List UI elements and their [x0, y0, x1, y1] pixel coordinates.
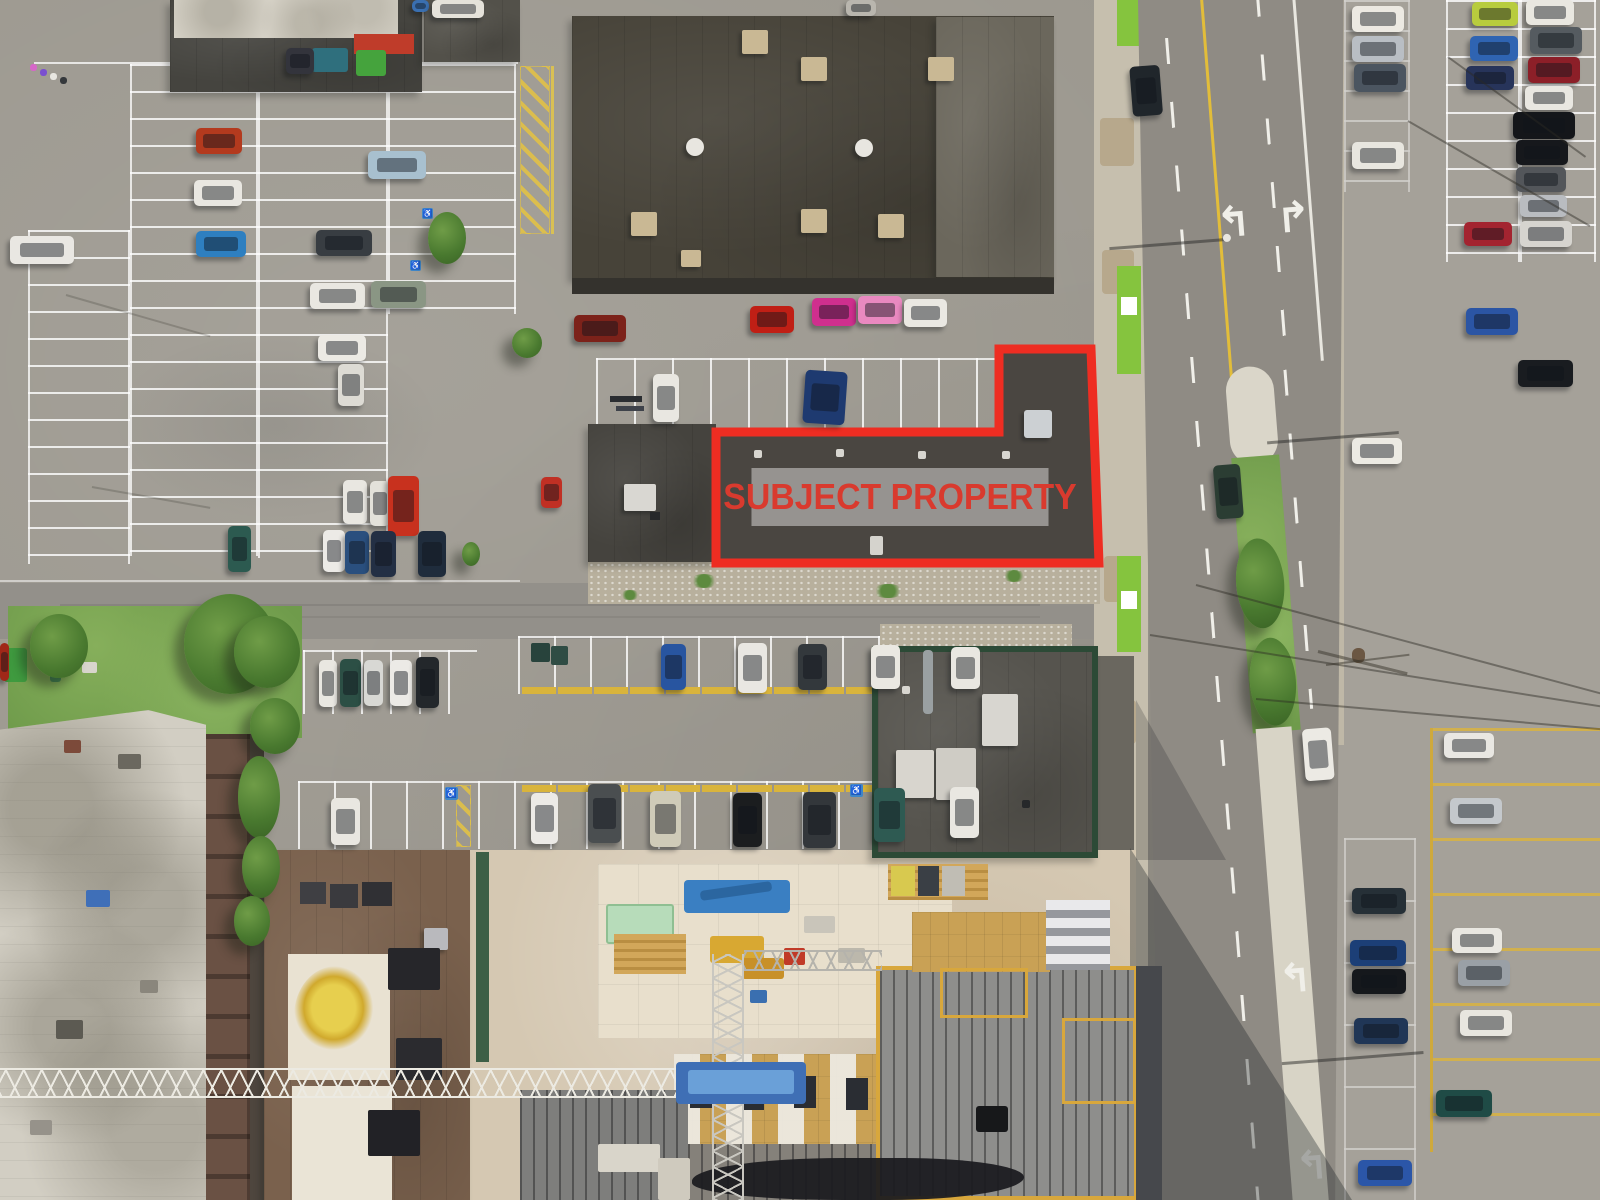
recycle-bins [312, 48, 348, 72]
car [1458, 960, 1510, 986]
car-on-road [1129, 65, 1163, 117]
building-side-shadow [1136, 966, 1162, 1200]
car [331, 798, 360, 845]
car [1464, 222, 1512, 246]
plywood-deck [912, 912, 1050, 972]
car [319, 660, 337, 707]
accessible-stall-marking: ♿ [422, 208, 433, 219]
car [364, 660, 383, 706]
hvac-unit [631, 212, 657, 236]
green-dumpster [356, 50, 386, 76]
motorcycles [610, 396, 642, 402]
car [316, 230, 372, 256]
car [1350, 940, 1406, 966]
car [1520, 221, 1572, 247]
hvac-unit [878, 214, 904, 238]
car [871, 645, 900, 689]
car [1354, 1018, 1408, 1044]
subject-roof-hvac [1024, 410, 1052, 438]
dumpster [531, 643, 550, 662]
car [1352, 142, 1404, 169]
hvac-unit [424, 928, 448, 950]
car [531, 793, 558, 844]
roof-object [140, 980, 158, 993]
roof-hatch [1022, 800, 1030, 808]
bike-lane-symbol: ∞ [1121, 591, 1137, 609]
reserved-stall-text: RESERVED [738, 785, 772, 792]
accessible-stall-marking: ♿ [445, 787, 458, 800]
car [228, 526, 251, 572]
reserved-stall-text: RESERVED [702, 785, 736, 792]
car [1470, 36, 1518, 61]
subject-roof-vent [836, 449, 844, 457]
pickup [846, 0, 876, 16]
materials [750, 990, 767, 1003]
roof-frame-inset [940, 968, 1028, 1018]
car [858, 296, 902, 324]
car [412, 0, 429, 12]
car [370, 481, 390, 526]
framing-opening [846, 1078, 868, 1110]
roof-hatch [976, 1106, 1008, 1132]
car [1352, 6, 1404, 32]
suv [588, 784, 621, 843]
tree [234, 896, 270, 946]
roof-structure [388, 948, 440, 990]
hvac-unit [624, 484, 656, 511]
reserved-stall-text: RESERVED [810, 785, 844, 792]
lane-dash-line [1256, 0, 1288, 362]
reserved-stall-text: RESERVED [774, 785, 808, 792]
hvac-unit [742, 30, 768, 54]
lane-solid-line [1292, 0, 1324, 361]
aerial-photo: ∞∞♿♿RESERVEDRESERVEDRESERVEDRESERVEDRESE… [0, 0, 1600, 1200]
yellow-curb [551, 66, 554, 234]
roof-structure [330, 884, 358, 908]
car [661, 644, 686, 690]
roof-structure [300, 882, 326, 904]
suv [1516, 140, 1568, 165]
pedestrian [60, 77, 67, 84]
building-side-shadow [1098, 656, 1134, 860]
car [310, 283, 365, 309]
roof-vent [855, 139, 873, 157]
car-on-road [1213, 464, 1244, 520]
car [318, 335, 366, 361]
top-building-south-wall [572, 278, 1054, 294]
yellow-hatch-ramp [456, 785, 471, 847]
pallet [918, 866, 939, 896]
car-on-road [1302, 727, 1335, 781]
car [345, 531, 369, 574]
parking-island-tree [428, 212, 466, 264]
parking-island-bush [512, 328, 542, 358]
materials [804, 916, 835, 933]
subject-roof-vent [1002, 451, 1010, 459]
car [653, 374, 679, 422]
suv [1436, 1090, 1492, 1117]
hvac-unit [801, 209, 827, 233]
reserved-stall-text: RESERVED [630, 687, 664, 694]
suv [1530, 27, 1582, 54]
car [750, 306, 794, 333]
hvac-unit [801, 57, 827, 81]
car [1452, 928, 1502, 953]
car [733, 793, 762, 847]
tree [234, 616, 300, 688]
reserved-stall-text: RESERVED [522, 687, 556, 694]
van [10, 236, 74, 264]
suv [803, 792, 836, 848]
roof-object [118, 754, 141, 769]
car [951, 647, 980, 689]
car [1526, 0, 1574, 25]
car [1466, 308, 1518, 335]
pickup [388, 476, 419, 536]
lumber-stack [614, 934, 686, 974]
car [1352, 969, 1406, 994]
bush [462, 542, 480, 566]
minivan [802, 370, 848, 426]
sidewalk-tree-pit [1100, 118, 1134, 166]
pedestrian [50, 73, 57, 80]
roof-object [30, 1120, 52, 1135]
crane-counter-jib [744, 950, 882, 971]
bike-lane-symbol: ∞ [1121, 297, 1137, 315]
stall-column [258, 64, 388, 558]
reserved-stall-text: RESERVED [558, 687, 592, 694]
car [1472, 2, 1518, 26]
roof-object [56, 1020, 83, 1039]
car [904, 299, 947, 327]
stall-column [28, 230, 130, 564]
car [196, 231, 246, 257]
hvac-unit [681, 250, 701, 267]
suv [1354, 64, 1406, 92]
roof-vent [902, 686, 910, 694]
yellow-hatch-zone [520, 66, 550, 234]
car [432, 0, 484, 18]
pallet [942, 866, 965, 896]
suv [418, 531, 446, 577]
car [1525, 86, 1573, 110]
accessible-stall-marking: ♿ [410, 260, 421, 271]
car [340, 659, 361, 707]
rooftop-units [598, 1144, 660, 1172]
bench [82, 662, 97, 673]
suv [371, 281, 426, 308]
reserved-stall-text: RESERVED [702, 687, 736, 694]
van [416, 657, 439, 708]
stall-column [388, 64, 516, 314]
car [194, 180, 242, 206]
car [1352, 36, 1404, 62]
car [1352, 438, 1402, 464]
car [1358, 1160, 1412, 1186]
tree [238, 756, 280, 838]
pedestrian [30, 64, 37, 71]
suv [1352, 888, 1406, 914]
hvac-unit [982, 694, 1018, 746]
tree [30, 614, 88, 678]
reserved-stall-text: RESERVED [594, 687, 628, 694]
suv [1528, 57, 1580, 83]
car [574, 315, 626, 342]
weed [620, 590, 640, 600]
roof-hatch [650, 512, 660, 520]
right-turn-arrow: ↱ [1278, 192, 1310, 244]
hvac-unit [928, 57, 954, 81]
reserved-stall-text: RESERVED [558, 785, 592, 792]
van [286, 48, 314, 74]
car [1444, 733, 1494, 758]
car [650, 791, 681, 847]
bike-lane-segment [1117, 266, 1141, 374]
car [371, 531, 396, 577]
bike-lane-segment [1117, 0, 1141, 46]
left-turn-arrow: ↰ [1279, 954, 1311, 1004]
car [368, 151, 426, 179]
car [541, 477, 562, 508]
weed [872, 584, 904, 598]
center-yellow-line [1200, 0, 1233, 378]
gravel-strip [588, 562, 1100, 604]
car [0, 643, 9, 681]
dumpster [551, 646, 568, 665]
rooftop-units [658, 1158, 690, 1200]
cross-lane-curb [0, 580, 520, 582]
pallet [891, 866, 915, 896]
tl-white-roof [174, 0, 398, 38]
subject-property-label: SUBJECT PROPERTY [751, 468, 1048, 526]
roof-structure [362, 882, 392, 906]
motorcycles [616, 406, 644, 411]
van [738, 643, 767, 693]
tree [250, 698, 300, 754]
accessible-stall-marking: ♿ [850, 784, 863, 797]
weed [1002, 570, 1026, 582]
tree [242, 836, 280, 898]
suv [1518, 360, 1573, 387]
car [812, 298, 856, 326]
skylight-panels [1046, 900, 1110, 970]
roof-object [64, 740, 81, 753]
weed [690, 574, 718, 588]
reserved-stall-text: RESERVED [522, 785, 556, 792]
car [323, 530, 345, 572]
pedestrian [40, 69, 47, 76]
construction-fence [476, 852, 489, 1062]
subject-roof-vent [918, 451, 926, 459]
roof-pipe [923, 650, 933, 714]
car [874, 788, 905, 842]
roof-structure [368, 1110, 420, 1156]
top-building-roof-light [936, 17, 1054, 277]
car [1450, 798, 1502, 824]
roof-frame-inset [1062, 1018, 1136, 1104]
car [196, 128, 242, 154]
crane-carriage-top [688, 1070, 794, 1094]
car [390, 660, 412, 706]
car [338, 364, 364, 406]
roof-object [86, 890, 110, 907]
subject-roof-hatch [870, 536, 883, 555]
car [343, 480, 367, 524]
crane-jib [0, 1068, 694, 1098]
subject-roof-vent [754, 450, 762, 458]
car [798, 644, 827, 690]
roof-vent [686, 138, 704, 156]
median-nose [1224, 365, 1280, 466]
car [950, 787, 979, 838]
car [1460, 1010, 1512, 1036]
